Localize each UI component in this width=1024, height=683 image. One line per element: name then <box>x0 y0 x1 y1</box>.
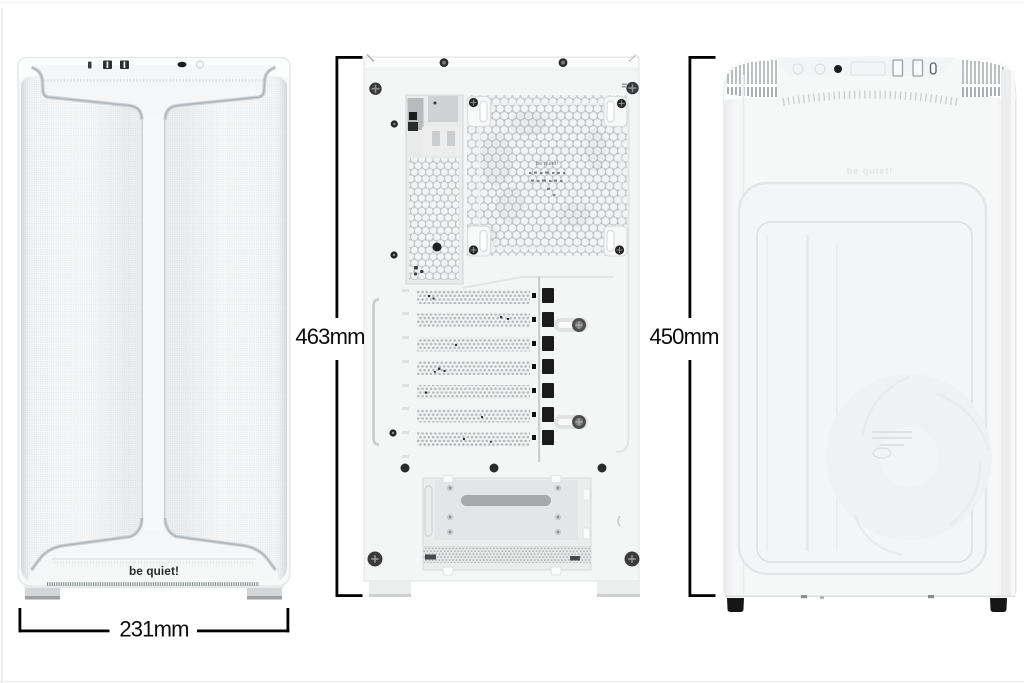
svg-text:be quiet!: be quiet! <box>847 166 894 176</box>
svg-text:463mm: 463mm <box>295 324 364 349</box>
svg-text:be quiet!: be quiet! <box>129 564 179 578</box>
svg-text:be quiet!: be quiet! <box>536 161 559 167</box>
svg-text:231mm: 231mm <box>119 617 188 642</box>
svg-text:450mm: 450mm <box>649 324 718 349</box>
